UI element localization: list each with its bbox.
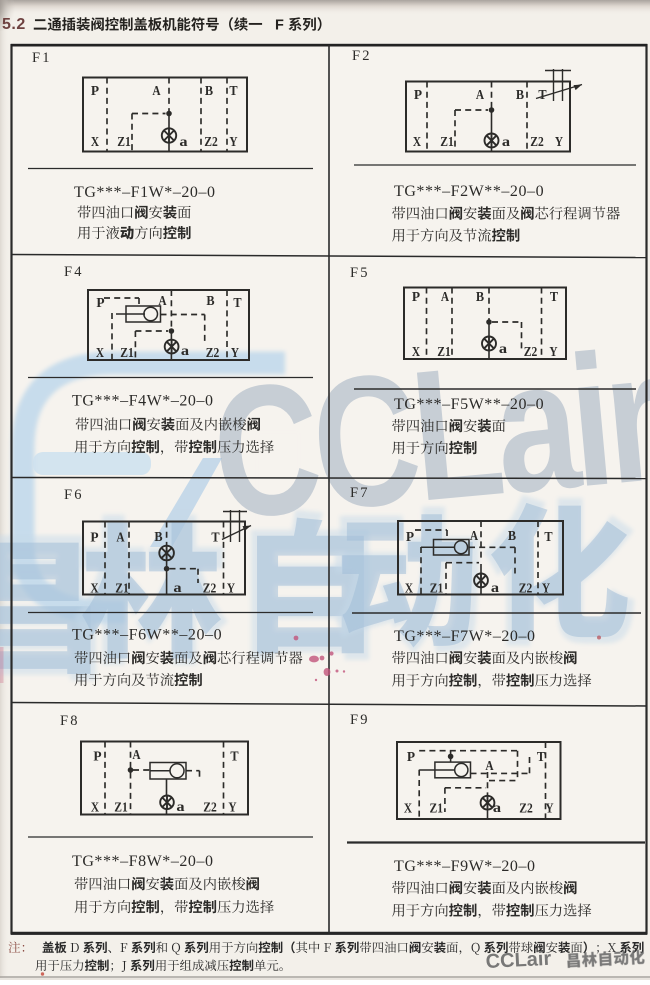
svg-text:TG***–F2W**–20–0: TG***–F2W**–20–0 xyxy=(394,183,544,200)
svg-text:F7: F7 xyxy=(350,485,370,501)
svg-text:5.2: 5.2 xyxy=(2,16,26,33)
svg-text:a: a xyxy=(179,135,187,150)
svg-text:T: T xyxy=(537,750,546,765)
svg-text:T: T xyxy=(229,84,238,99)
svg-text:Z2: Z2 xyxy=(519,802,533,817)
svg-text:F2: F2 xyxy=(352,48,372,64)
svg-text:Z1: Z1 xyxy=(114,801,128,816)
svg-text:B: B xyxy=(476,290,484,305)
svg-text:X: X xyxy=(90,582,98,597)
svg-text:X: X xyxy=(404,802,412,817)
svg-text:a: a xyxy=(502,135,510,150)
svg-text:Z1: Z1 xyxy=(115,582,129,597)
svg-text:T: T xyxy=(230,750,239,765)
svg-text:T: T xyxy=(233,296,242,311)
svg-text:TG***–F8W*–20–0: TG***–F8W*–20–0 xyxy=(72,853,214,870)
svg-text:P: P xyxy=(96,296,105,311)
svg-text:F8: F8 xyxy=(60,713,80,729)
svg-text:T: T xyxy=(538,88,547,103)
svg-text:B: B xyxy=(508,529,516,544)
svg-text:P: P xyxy=(407,750,416,765)
svg-text:TG***–F6W**–20–0: TG***–F6W**–20–0 xyxy=(72,627,222,644)
svg-text:B: B xyxy=(206,294,214,309)
svg-text:T: T xyxy=(544,530,553,545)
svg-text:Z1: Z1 xyxy=(430,802,444,817)
svg-text:a: a xyxy=(491,581,499,596)
svg-text:Z2: Z2 xyxy=(203,801,217,816)
svg-text:Z2: Z2 xyxy=(206,346,220,361)
svg-text:Y: Y xyxy=(229,135,237,150)
svg-text:F4: F4 xyxy=(64,264,84,280)
svg-text:P: P xyxy=(91,84,100,99)
svg-text:P: P xyxy=(412,290,421,305)
svg-text:Z2: Z2 xyxy=(524,345,538,360)
svg-text:F9: F9 xyxy=(350,712,370,728)
svg-text:P: P xyxy=(414,88,423,103)
svg-text:X: X xyxy=(412,345,420,360)
svg-text:Z2: Z2 xyxy=(203,582,217,597)
svg-text:X: X xyxy=(91,801,99,816)
svg-text:A: A xyxy=(441,290,450,305)
svg-text:Y: Y xyxy=(545,802,553,817)
svg-text:Y: Y xyxy=(555,135,563,150)
svg-text:T: T xyxy=(211,531,220,546)
svg-text:Y: Y xyxy=(227,582,235,597)
svg-text:A: A xyxy=(152,84,161,99)
svg-text:F: F xyxy=(275,18,284,34)
svg-text:a: a xyxy=(173,581,181,596)
svg-text:Z1: Z1 xyxy=(120,346,134,361)
svg-text:A: A xyxy=(470,529,479,544)
svg-text:Z1: Z1 xyxy=(440,135,454,150)
svg-text:P: P xyxy=(90,531,99,546)
svg-text:X: X xyxy=(413,135,421,150)
svg-text:TG***–F9W*–20–0: TG***–F9W*–20–0 xyxy=(394,858,536,875)
svg-text:A: A xyxy=(116,531,125,546)
svg-text:X: X xyxy=(96,346,104,361)
svg-text:Z1: Z1 xyxy=(437,345,451,360)
svg-text:B: B xyxy=(516,88,524,103)
svg-text:F5: F5 xyxy=(350,265,370,281)
svg-text:Z1: Z1 xyxy=(117,135,131,150)
svg-text:P: P xyxy=(93,750,102,765)
svg-text:Y: Y xyxy=(231,346,239,361)
svg-text:Z1: Z1 xyxy=(430,582,444,597)
svg-text:a: a xyxy=(499,342,507,357)
svg-text:a: a xyxy=(181,344,189,359)
svg-text:TG***–F1W*–20–0: TG***–F1W*–20–0 xyxy=(74,184,216,201)
svg-text:a: a xyxy=(493,801,501,816)
svg-text:A: A xyxy=(158,294,167,309)
svg-text:Z2: Z2 xyxy=(519,582,533,597)
svg-text:TG***–F5W**–20–0: TG***–F5W**–20–0 xyxy=(394,396,544,413)
svg-text:F1: F1 xyxy=(32,50,52,66)
svg-text:CCLair: CCLair xyxy=(485,948,552,973)
svg-text:X: X xyxy=(91,135,99,150)
svg-text:Z2: Z2 xyxy=(530,135,544,150)
svg-text:A: A xyxy=(132,748,141,763)
svg-text:TG***–F4W*–20–0: TG***–F4W*–20–0 xyxy=(72,393,214,410)
svg-text:Z2: Z2 xyxy=(204,135,218,150)
svg-text:A: A xyxy=(485,759,494,774)
svg-text:TG***–F7W*–20–0: TG***–F7W*–20–0 xyxy=(394,628,536,645)
svg-text:F6: F6 xyxy=(64,487,84,503)
svg-text:B: B xyxy=(154,530,162,545)
svg-text:B: B xyxy=(205,84,213,99)
svg-text:P: P xyxy=(406,530,415,545)
svg-text:a: a xyxy=(176,800,184,815)
svg-text:T: T xyxy=(550,290,559,305)
svg-text:A: A xyxy=(476,88,485,103)
svg-text:Y: Y xyxy=(542,582,550,597)
svg-text:Y: Y xyxy=(549,345,557,360)
svg-text:X: X xyxy=(405,582,413,597)
svg-text:Y: Y xyxy=(228,801,236,816)
